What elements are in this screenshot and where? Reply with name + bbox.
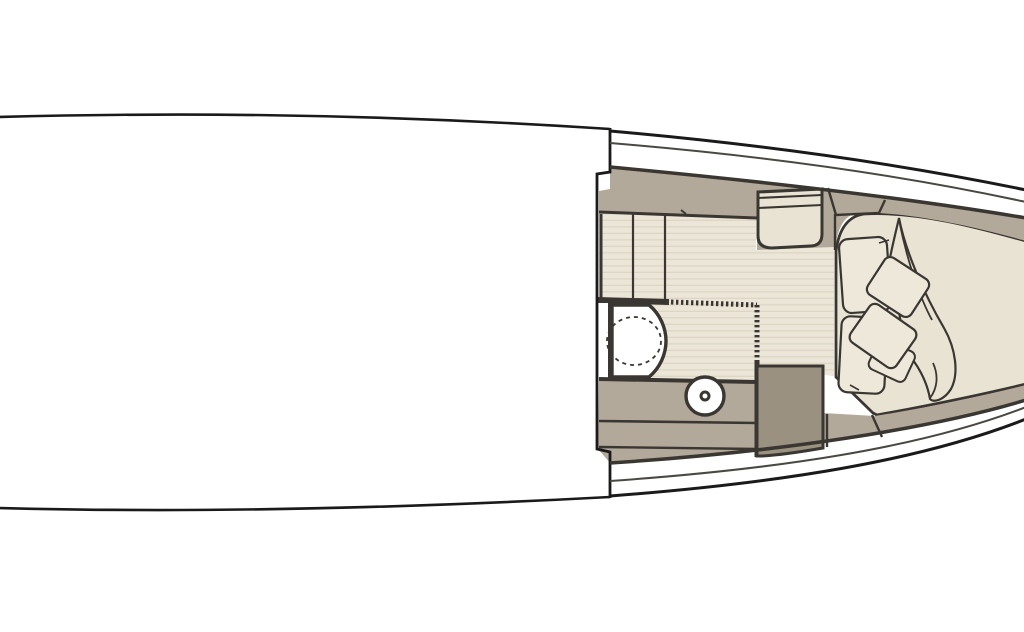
steps-bulkhead: [597, 300, 669, 302]
toilet-enclosure: [612, 305, 666, 377]
sheer-line-top: [0, 115, 610, 129]
yacht-floorplan-svg: [0, 0, 1024, 632]
washbasin-drain: [701, 392, 709, 400]
floorplan-canvas: [0, 0, 1024, 632]
sheer-line-bottom: [0, 497, 610, 510]
